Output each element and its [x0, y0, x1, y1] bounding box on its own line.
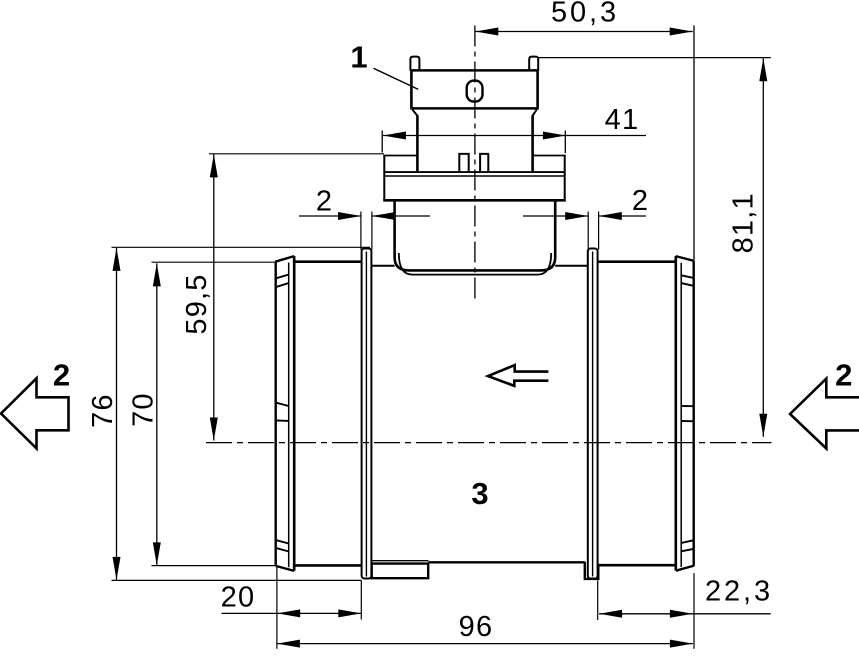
- svg-text:3: 3: [471, 476, 488, 511]
- svg-text:76: 76: [87, 393, 119, 428]
- svg-text:41: 41: [605, 104, 640, 136]
- svg-text:70: 70: [127, 392, 159, 427]
- svg-text:96: 96: [459, 611, 494, 643]
- svg-text:81,1: 81,1: [728, 192, 760, 253]
- svg-text:20: 20: [221, 582, 256, 614]
- svg-text:1: 1: [350, 40, 367, 75]
- svg-text:22,3: 22,3: [705, 576, 773, 608]
- svg-text:59,5: 59,5: [181, 273, 213, 334]
- svg-text:2: 2: [632, 185, 649, 217]
- svg-text:2: 2: [316, 186, 333, 218]
- svg-text:2: 2: [53, 358, 70, 393]
- svg-text:50,3: 50,3: [551, 0, 619, 29]
- svg-text:2: 2: [835, 358, 852, 393]
